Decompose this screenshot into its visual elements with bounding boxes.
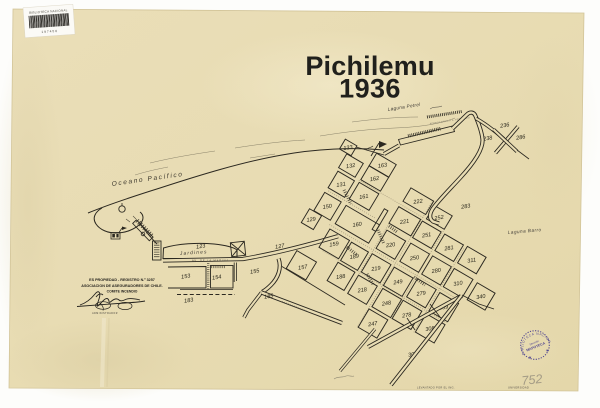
svg-text:ES PROPIEDAD - REGISTRO N.º 32: ES PROPIEDAD - REGISTRO N.º 3257 [89,278,155,282]
svg-text:AV. DE LA MARINA: AV. DE LA MARINA [192,259,229,263]
svg-text:COMITE INCENDIO: COMITE INCENDIO [107,290,138,294]
svg-text:ADMINISTRADOR: ADMINISTRADOR [92,312,118,315]
svg-text:LEVANTADO POR EL ING.: LEVANTADO POR EL ING. [417,386,455,390]
svg-text:752: 752 [521,372,543,388]
svg-text:1936: 1936 [339,74,401,104]
svg-text:ASOCIACION DE ASEGURADORES DE: ASOCIACION DE ASEGURADORES DE CHILE. [81,284,162,288]
